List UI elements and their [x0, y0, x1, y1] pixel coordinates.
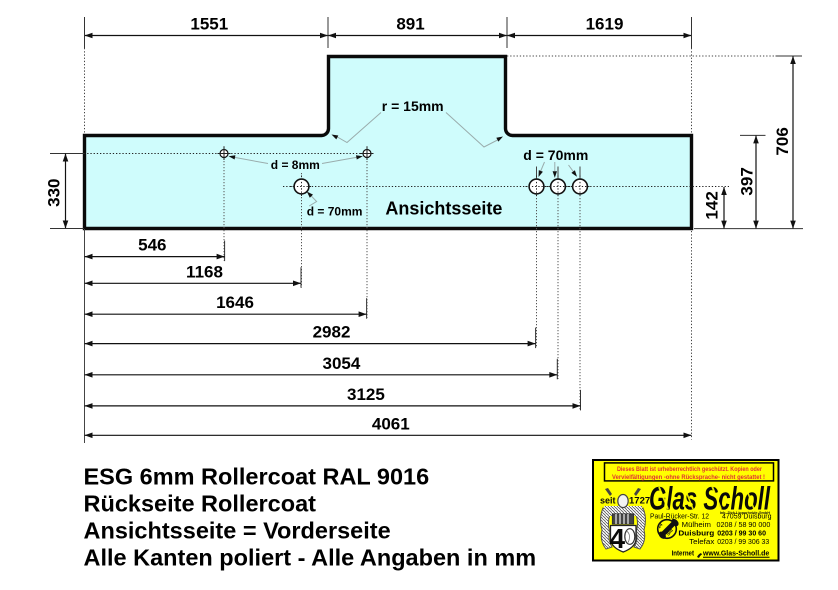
svg-text:Ansichtsseite = Vorderseite: Ansichtsseite = Vorderseite: [84, 518, 391, 544]
svg-text:397: 397: [737, 167, 756, 195]
svg-text:Telefax: Telefax: [689, 537, 714, 546]
svg-text:www.Glas-Scholl.de: www.Glas-Scholl.de: [702, 548, 769, 557]
svg-text:Rückseite Rollercoat: Rückseite Rollercoat: [84, 491, 317, 517]
svg-text:706: 706: [773, 127, 792, 155]
svg-text:1727: 1727: [629, 496, 650, 507]
svg-text:2982: 2982: [313, 323, 351, 342]
svg-text:ESG 6mm Rollercoat RAL 9016: ESG 6mm Rollercoat RAL 9016: [84, 464, 430, 490]
svg-text:Alle Kanten poliert - Alle Ang: Alle Kanten poliert - Alle Angaben in mm: [84, 544, 537, 570]
svg-text:seit: seit: [600, 496, 616, 506]
svg-text:r = 15mm: r = 15mm: [382, 98, 444, 114]
svg-text:142: 142: [703, 191, 722, 219]
svg-text:1551: 1551: [190, 15, 228, 34]
svg-text:330: 330: [45, 179, 64, 207]
svg-text:891: 891: [396, 15, 424, 34]
svg-text:1646: 1646: [216, 293, 254, 312]
svg-text:0203 / 99 306 33: 0203 / 99 306 33: [717, 537, 769, 546]
svg-text:Dieses Blatt ist urheberrechtl: Dieses Blatt ist urheberrechtlich geschü…: [617, 466, 762, 473]
svg-text:4061: 4061: [372, 414, 410, 433]
svg-text:3054: 3054: [322, 354, 360, 373]
svg-text:3125: 3125: [347, 385, 385, 404]
svg-text:546: 546: [138, 236, 166, 255]
svg-text:d = 70mm: d = 70mm: [307, 205, 363, 219]
svg-text:1168: 1168: [186, 262, 223, 281]
svg-text:0208 / 58 90 000: 0208 / 58 90 000: [717, 520, 771, 529]
svg-text:Mülheim: Mülheim: [682, 520, 711, 529]
svg-text:Ansichtsseite: Ansichtsseite: [385, 199, 502, 219]
svg-text:4: 4: [610, 523, 626, 554]
svg-text:Internet: Internet: [672, 548, 695, 557]
svg-text:d = 8mm: d = 8mm: [271, 158, 320, 172]
svg-text:d = 70mm: d = 70mm: [523, 147, 588, 163]
svg-text:1619: 1619: [586, 15, 624, 34]
